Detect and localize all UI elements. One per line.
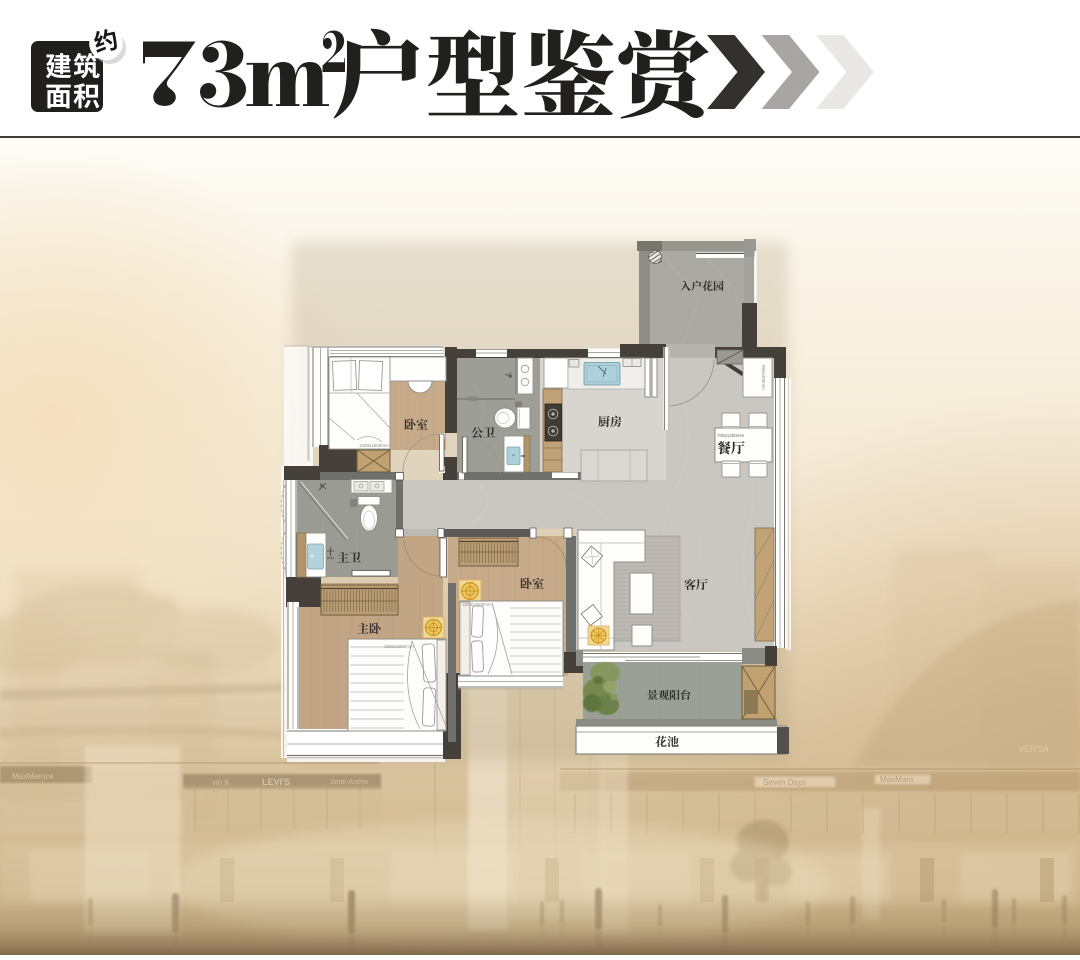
svg-text:MaxMara: MaxMara	[880, 775, 914, 784]
svg-text:Semi-Anche: Semi-Anche	[330, 779, 368, 786]
svg-text:1200x1500mm: 1200x1500mm	[359, 443, 389, 448]
svg-text:LEVI'S: LEVI'S	[262, 777, 290, 787]
svg-text:1500x2000mm: 1500x2000mm	[384, 644, 414, 649]
svg-text:1800x2000mm: 1800x2000mm	[462, 602, 492, 607]
svg-text:850x400mm: 850x400mm	[761, 365, 766, 390]
svg-text:VERSA: VERSA	[1018, 744, 1049, 754]
svg-text:vin K: vin K	[212, 778, 230, 787]
svg-text:700x1200mm: 700x1200mm	[717, 433, 745, 438]
svg-text:Seven Days: Seven Days	[763, 778, 806, 787]
svg-text:MaxMerrice: MaxMerrice	[12, 772, 54, 781]
